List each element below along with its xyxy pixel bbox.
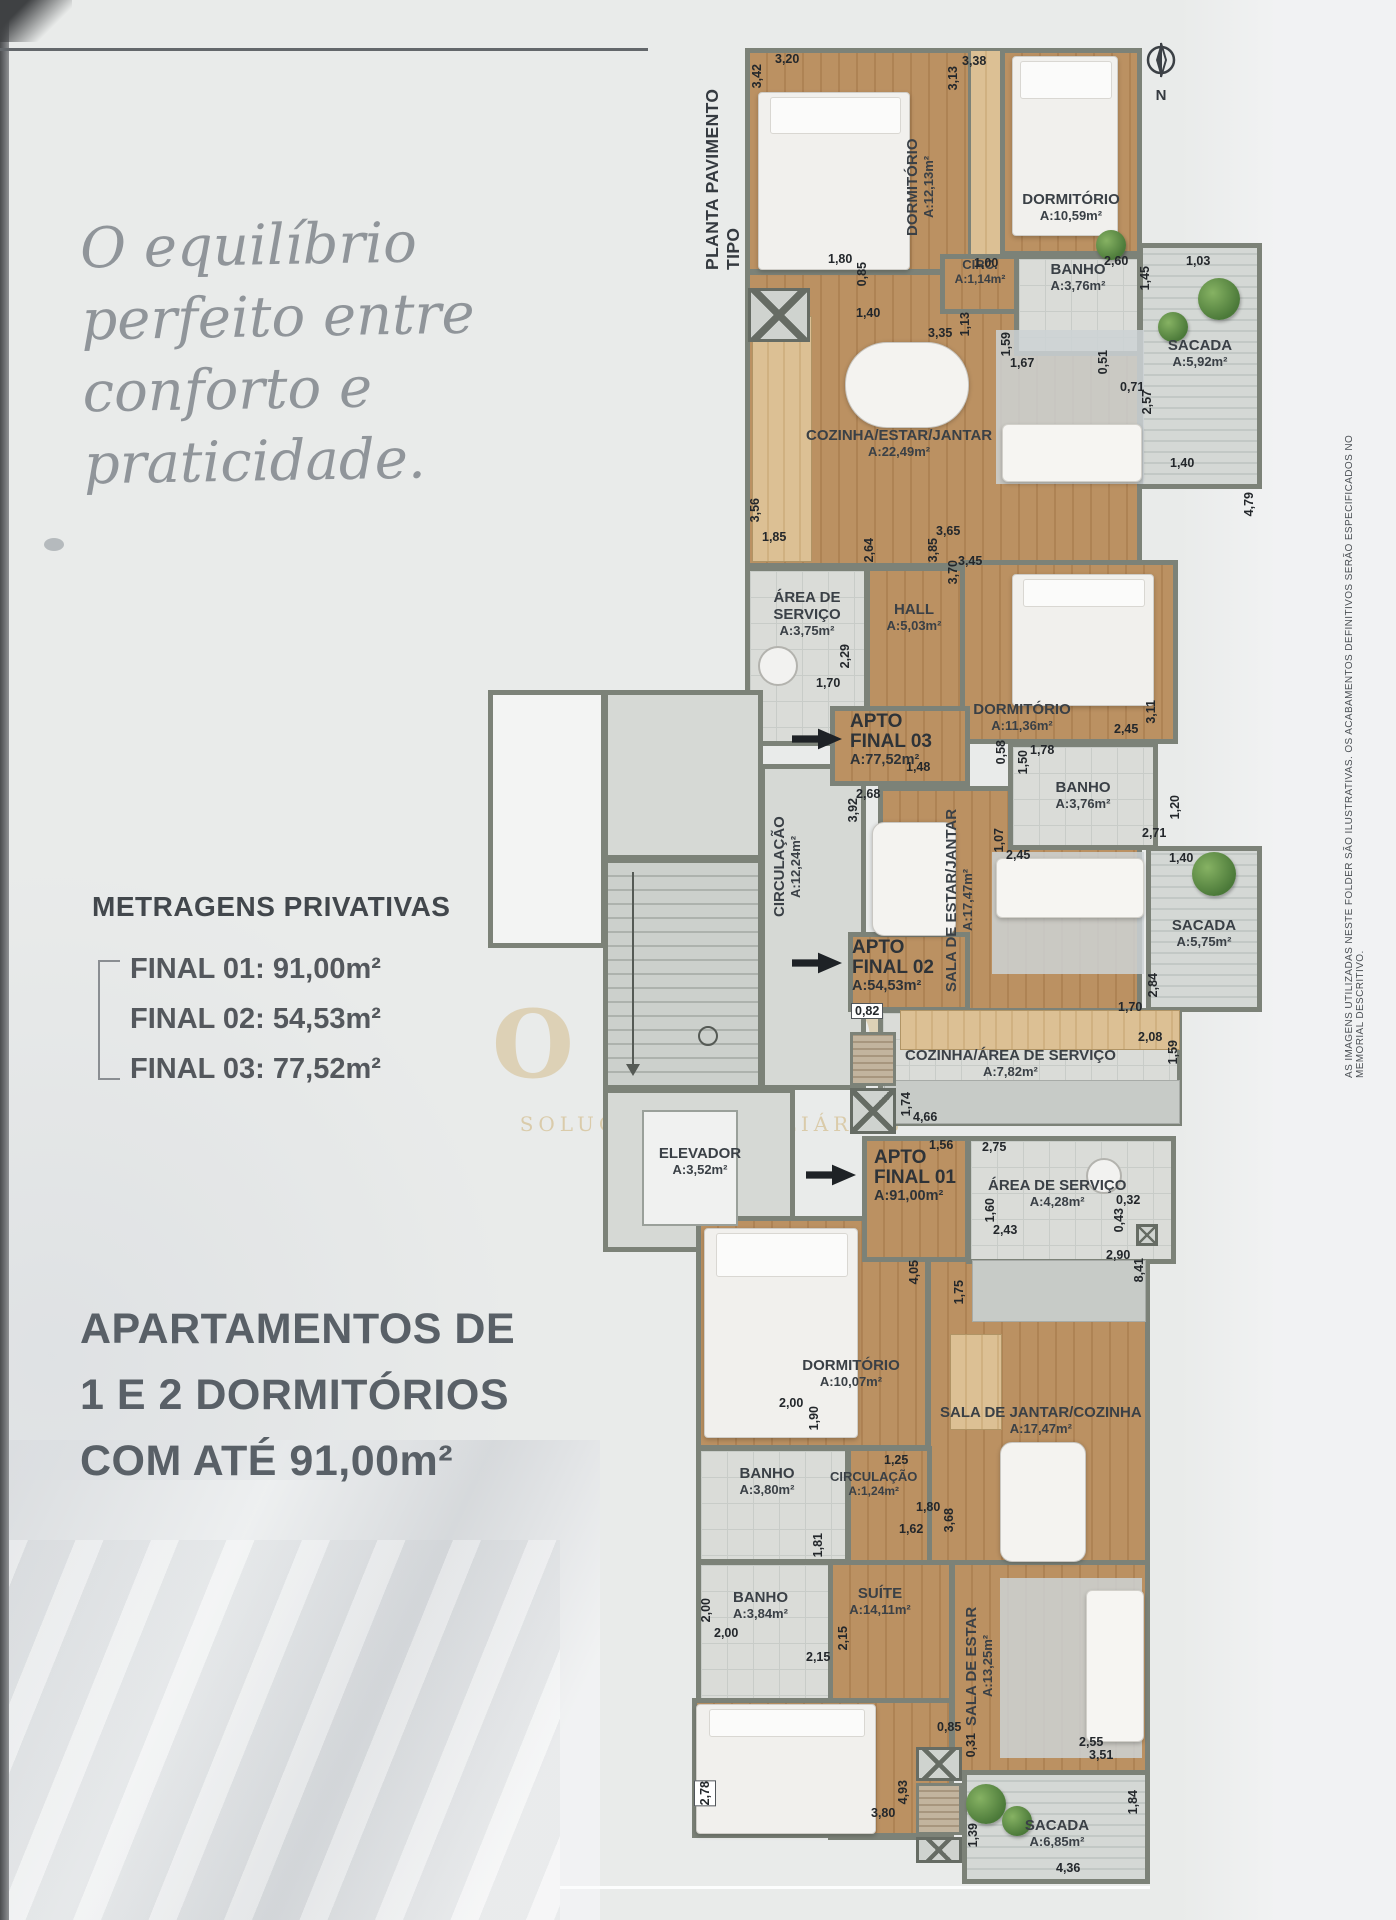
room-name: BANHO <box>1028 780 1138 797</box>
room-area: A:12,13m² <box>922 112 937 262</box>
room-area: A:17,47m² <box>961 800 976 1000</box>
room-banho-384 <box>696 1560 834 1720</box>
dimension-label: 3,70 <box>946 560 960 584</box>
room-name: COZINHA/ÁREA DE SERVIÇO <box>905 1048 1116 1065</box>
plant-icon <box>966 1784 1006 1824</box>
dimension-label: 0,85 <box>937 1720 961 1734</box>
dimension-label: 1,78 <box>1030 743 1054 757</box>
stair-rail <box>632 872 634 1067</box>
metragem-final-03: FINAL 03: 77,52m² <box>130 1044 381 1094</box>
dimension-label: 2,43 <box>993 1223 1017 1237</box>
room-name: DORMITÓRIO <box>1006 192 1136 209</box>
washer-icon <box>758 646 798 686</box>
dimension-label: 2,15 <box>836 1626 850 1650</box>
dimension-label: 1,84 <box>1126 1790 1140 1814</box>
dimension-label: 1,45 <box>1138 266 1152 290</box>
metragens-title: METRAGENS PRIVATIVAS <box>92 891 450 923</box>
room-name: DORMITÓRIO <box>786 1358 916 1375</box>
room-name: ÁREA DE SERVIÇO <box>988 1178 1126 1195</box>
dimension-label: 2,64 <box>862 538 876 562</box>
room-label: HALL A:5,03m² <box>866 602 962 633</box>
room-label: ELEVADOR A:3,52m² <box>620 1146 780 1177</box>
room-name: CIRCULAÇÃO <box>772 792 789 942</box>
dimension-label: 4,05 <box>907 1260 921 1284</box>
dimension-label: 1,74 <box>899 1092 913 1116</box>
entry-arrow-icon <box>806 1162 856 1188</box>
dining-table <box>845 342 969 428</box>
dimension-label: 4,36 <box>1056 1861 1080 1875</box>
stair-post <box>698 1026 718 1046</box>
dimension-label: 3,11 <box>1144 700 1158 724</box>
room-label: CIRCULAÇÃO A:12,24m² <box>772 792 803 942</box>
room-name: ÁREA DE SERVIÇO <box>752 590 862 624</box>
bottom-headline-line: 1 E 2 DORMITÓRIOS <box>80 1362 515 1428</box>
dimension-label: 1,85 <box>762 530 786 544</box>
top-rule-line <box>0 48 648 51</box>
dimension-label: 4,79 <box>1242 492 1256 516</box>
room-area: A:3,80m² <box>712 1483 822 1498</box>
apto-name: APTO FINAL 01 <box>874 1148 972 1188</box>
room-name: COZINHA/ESTAR/JANTAR <box>806 428 992 445</box>
brochure-page: OURO SOLUÇÕES IMOBILIÁRIAS O equilíbrio … <box>0 0 1396 1920</box>
room-area: A:11,36m² <box>952 719 1092 734</box>
apto-final-02-label: APTO FINAL 02 A:54,53m² <box>852 938 950 994</box>
apto-name: APTO FINAL 02 <box>852 938 950 978</box>
kitchen-counter <box>972 1260 1146 1322</box>
metragens-bracket <box>98 960 120 1080</box>
shaft-box <box>916 1747 962 1781</box>
dimension-label: 3,80 <box>871 1806 895 1820</box>
dimension-label: 1,80 <box>916 1500 940 1514</box>
stair-down-arrow <box>626 1064 640 1076</box>
room-name: SACADA <box>1002 1818 1112 1835</box>
metragem-final-02: FINAL 02: 54,53m² <box>130 994 381 1044</box>
room-name: BANHO <box>708 1590 813 1607</box>
dimension-label: 1,75 <box>952 1280 966 1304</box>
room-area: A:3,52m² <box>620 1163 780 1178</box>
script-line: praticidade. <box>83 423 477 502</box>
dimension-label: 4,93 <box>896 1780 910 1804</box>
dimension-label: 2,00 <box>699 1598 713 1622</box>
room-area: A:1,14m² <box>938 273 1022 286</box>
apto-area: A:54,53m² <box>852 979 950 994</box>
dimension-label: 0,51 <box>1096 350 1110 374</box>
dimension-label: 1,07 <box>992 828 1006 852</box>
dimension-label: 0,43 <box>1112 1208 1126 1232</box>
room-name: SALA DE ESTAR <box>964 1596 981 1736</box>
room-name: SACADA <box>1154 918 1254 935</box>
room-label: BANHO A:3,76m² <box>1028 780 1138 811</box>
room-name: HALL <box>866 602 962 619</box>
stair-landing <box>603 690 763 860</box>
room-area: A:3,84m² <box>708 1607 813 1622</box>
fabric-texture <box>0 1540 560 1920</box>
dimension-label: 0,58 <box>994 740 1008 764</box>
room-banho-380 <box>696 1446 850 1564</box>
room-area: A:1,24m² <box>830 1485 917 1498</box>
metragem-final-01: FINAL 01: 91,00m² <box>130 944 381 994</box>
dimension-label: 2,15 <box>806 1650 830 1664</box>
room-label: CIRCULAÇÃO A:1,24m² <box>830 1470 917 1498</box>
room-area: A:3,75m² <box>752 624 862 639</box>
dimension-label: 0,32 <box>1116 1193 1140 1207</box>
bottom-headline: APARTAMENTOS DE 1 E 2 DORMITÓRIOS COM AT… <box>80 1296 515 1494</box>
room-area: A:4,28m² <box>988 1195 1126 1210</box>
room-area: A:22,49m² <box>806 445 992 460</box>
shaft-box <box>748 288 810 342</box>
dimension-label: 1,60 <box>983 1198 997 1222</box>
dimension-label: 1,40 <box>1169 851 1193 865</box>
dimension-label: 3,92 <box>846 798 860 822</box>
dimension-label: 2,45 <box>1006 848 1030 862</box>
room-area: A:13,25m² <box>981 1596 996 1736</box>
stairs <box>603 858 763 1090</box>
room-label: COZINHA/ÁREA DE SERVIÇO A:7,82m² <box>905 1048 1116 1079</box>
room-area: A:6,85m² <box>1002 1835 1112 1850</box>
script-line: perfeito entre <box>81 279 475 358</box>
dimension-label: 1,70 <box>1118 1000 1142 1014</box>
dimension-label: 1,40 <box>1170 456 1194 470</box>
room-area: A:5,92m² <box>1146 355 1254 370</box>
dining-table <box>1000 1442 1086 1562</box>
ink-smudge <box>44 538 64 551</box>
plant-icon <box>1192 852 1236 896</box>
dimension-label: 8,41 <box>1132 1258 1146 1282</box>
room-label: SACADA A:5,92m² <box>1146 338 1254 369</box>
dimension-label: 3,38 <box>962 54 986 68</box>
dimension-label: 3,68 <box>942 1508 956 1532</box>
bed <box>1012 574 1154 706</box>
dimension-label: 2,45 <box>1114 722 1138 736</box>
room-name: SACADA <box>1146 338 1254 355</box>
dimension-label: 2,55 <box>1079 1735 1103 1749</box>
dimension-label: 1,40 <box>856 306 880 320</box>
dimension-label: 1,90 <box>807 1406 821 1430</box>
compass-icon <box>1140 40 1182 84</box>
dimension-label: 3,42 <box>750 64 764 88</box>
page-edge-left <box>0 0 9 1920</box>
compass: N <box>1140 40 1182 104</box>
apto-name: APTO FINAL 03 <box>850 712 948 752</box>
apto-area: A:91,00m² <box>874 1189 972 1204</box>
shaft-hatch <box>916 1783 962 1835</box>
dimension-label: 2,00 <box>779 1396 803 1410</box>
dimension-label: 1,81 <box>811 1533 825 1557</box>
bed <box>758 92 910 270</box>
dimension-label: 2,08 <box>1138 1030 1162 1044</box>
room-area: A:14,11m² <box>830 1603 930 1618</box>
script-line: O equilíbrio <box>80 207 474 286</box>
room-label: DORMITÓRIO A:12,13m² <box>905 112 936 262</box>
room-area: A:7,82m² <box>905 1065 1116 1080</box>
room-label: SACADA A:5,75m² <box>1154 918 1254 949</box>
page-corner-shadow <box>0 0 72 42</box>
shaft-hatch <box>850 1032 896 1086</box>
dimension-label: 4,66 <box>913 1110 937 1124</box>
room-area: A:12,24m² <box>789 792 804 942</box>
room-label: BANHO A:3,80m² <box>712 1466 822 1497</box>
kitchen-counter <box>752 316 812 562</box>
room-label: SALA DE ESTAR A:13,25m² <box>964 1596 995 1736</box>
dimension-label: 0,82 <box>851 1003 883 1019</box>
dimension-label: 2,60 <box>1104 254 1128 268</box>
dimension-label: 1,48 <box>906 760 930 774</box>
dimension-label: 0,85 <box>855 262 869 286</box>
dimension-label: 1,03 <box>1186 254 1210 268</box>
apto-final-03-label: APTO FINAL 03 A:77,52m² <box>850 712 948 768</box>
room-name: DORMITÓRIO <box>952 702 1092 719</box>
room-label: SUÍTE A:14,11m² <box>830 1586 930 1617</box>
room-label: SACADA A:6,85m² <box>1002 1818 1112 1849</box>
bottom-white-line <box>560 1886 1150 1889</box>
room-name: ELEVADOR <box>620 1146 780 1163</box>
dimension-label: 2,71 <box>1142 826 1166 840</box>
apto-final-01-label: APTO FINAL 01 A:91,00m² <box>874 1148 972 1204</box>
shaft-box <box>850 1088 896 1134</box>
dimension-label: 2,75 <box>982 1140 1006 1154</box>
dimension-label: 1,80 <box>828 252 852 266</box>
plan-title: PLANTA PAVIMENTO TIPO <box>702 50 744 270</box>
room-label: BANHO A:3,84m² <box>708 1590 813 1621</box>
room-name: DORMITÓRIO <box>905 112 922 262</box>
dimension-label: 1,13 <box>958 312 972 336</box>
disclaimer-text: AS IMAGENS UTILIZADAS NESTE FOLDER SÃO I… <box>1344 418 1366 1078</box>
dimension-label: 0,31 <box>964 1733 978 1757</box>
dimension-label: 1,62 <box>899 1522 923 1536</box>
bottom-headline-line: APARTAMENTOS DE <box>80 1296 515 1362</box>
dimension-label: 1,59 <box>999 332 1013 356</box>
apto-area: A:77,52m² <box>850 753 948 768</box>
dimension-label: 1,56 <box>929 1138 953 1152</box>
dimension-label: 3,65 <box>936 524 960 538</box>
room-label: DORMITÓRIO A:10,59m² <box>1006 192 1136 223</box>
dimension-label: 1,59 <box>1166 1040 1180 1064</box>
room-name: BANHO <box>712 1466 822 1483</box>
room-label: ÁREA DE SERVIÇO A:3,75m² <box>752 590 862 638</box>
lightwell <box>488 690 606 948</box>
dimension-label: 1,67 <box>1010 356 1034 370</box>
dimension-label: 2,29 <box>838 644 852 668</box>
dimension-label: 3,13 <box>946 66 960 90</box>
shaft-box <box>1136 1224 1158 1246</box>
script-line: conforto e <box>82 351 476 430</box>
bed <box>696 1704 876 1834</box>
room-name: CIRCULAÇÃO <box>830 1470 917 1485</box>
compass-label: N <box>1140 87 1182 104</box>
dimension-label: 2,78 <box>694 1780 716 1806</box>
sofa <box>996 858 1144 918</box>
dimension-label: 2,00 <box>714 1626 738 1640</box>
dimension-label: 1,20 <box>1168 795 1182 819</box>
room-area: A:10,07m² <box>786 1375 916 1390</box>
sofa <box>1086 1590 1144 1742</box>
dimension-label: 2,90 <box>1106 1248 1130 1262</box>
dimension-label: 1,50 <box>1016 750 1030 774</box>
room-name: SUÍTE <box>830 1586 930 1603</box>
dimension-label: 1,25 <box>884 1453 908 1467</box>
room-area: A:10,59m² <box>1006 209 1136 224</box>
dimension-label: 2,57 <box>1140 390 1154 414</box>
room-label: DORMITÓRIO A:10,07m² <box>786 1358 916 1389</box>
shaft-box <box>916 1837 962 1863</box>
dimension-label: 3,35 <box>928 326 952 340</box>
dimension-label: 1,39 <box>966 1823 980 1847</box>
script-headline: O equilíbrio perfeito entre conforto e p… <box>80 207 478 502</box>
dimension-label: 3,51 <box>1089 1748 1113 1762</box>
bottom-headline-line: COM ATÉ 91,00m² <box>80 1428 515 1494</box>
dimension-label: 1,70 <box>816 676 840 690</box>
dimension-label: 3,85 <box>926 538 940 562</box>
metragens-list: FINAL 01: 91,00m² FINAL 02: 54,53m² FINA… <box>130 944 381 1094</box>
dimension-label: 3,20 <box>775 52 799 66</box>
room-label: ÁREA DE SERVIÇO A:4,28m² <box>988 1178 1126 1209</box>
fabric-texture <box>0 1440 600 1920</box>
room-area: A:17,47m² <box>940 1422 1142 1437</box>
dimension-label: 3,45 <box>958 554 982 568</box>
room-label: SALA DE JANTAR/COZINHA A:17,47m² <box>940 1405 1142 1436</box>
room-area: A:3,76m² <box>1028 797 1138 812</box>
room-name: SALA DE JANTAR/COZINHA <box>940 1405 1142 1422</box>
room-label: COZINHA/ESTAR/JANTAR A:22,49m² <box>806 428 992 459</box>
plant-icon <box>1198 278 1240 320</box>
sofa <box>1002 424 1142 482</box>
room-area: A:5,75m² <box>1154 935 1254 950</box>
dimension-label: 3,56 <box>748 498 762 522</box>
room-label: DORMITÓRIO A:11,36m² <box>952 702 1092 733</box>
dimension-label: 1,00 <box>974 256 998 270</box>
dimension-label: 2,84 <box>1146 973 1160 997</box>
room-area: A:5,03m² <box>866 619 962 634</box>
room-area: A:3,76m² <box>1024 279 1132 294</box>
